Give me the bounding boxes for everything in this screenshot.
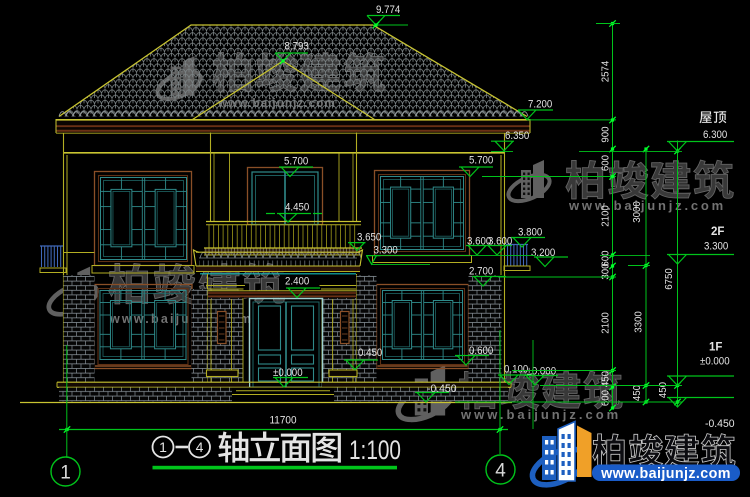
svg-text:3300: 3300 xyxy=(633,311,645,333)
svg-text:7.200: 7.200 xyxy=(528,99,552,111)
svg-text:6.350: 6.350 xyxy=(505,130,529,142)
svg-text:3.800: 3.800 xyxy=(518,227,542,239)
svg-text:5.700: 5.700 xyxy=(469,155,493,167)
svg-text:8.793: 8.793 xyxy=(285,41,309,53)
svg-text:450: 450 xyxy=(600,371,612,387)
svg-text:0.100: 0.100 xyxy=(504,364,528,376)
svg-text:4: 4 xyxy=(495,461,506,482)
svg-text:3.300: 3.300 xyxy=(704,241,728,253)
svg-text:1F: 1F xyxy=(709,342,722,354)
svg-text:1: 1 xyxy=(60,463,71,484)
svg-text:600: 600 xyxy=(600,155,612,171)
svg-text:450: 450 xyxy=(657,382,669,398)
svg-text:-0.450: -0.450 xyxy=(705,418,735,430)
svg-text:5.700: 5.700 xyxy=(284,156,308,168)
svg-text:4.450: 4.450 xyxy=(285,202,309,214)
svg-text:1: 1 xyxy=(159,439,167,455)
svg-text:1:100: 1:100 xyxy=(349,435,401,465)
svg-text:2100: 2100 xyxy=(600,205,612,227)
svg-text:±0.000: ±0.000 xyxy=(700,356,730,368)
svg-text:3000: 3000 xyxy=(631,201,643,223)
svg-text:3.300: 3.300 xyxy=(374,245,398,257)
svg-text:2100: 2100 xyxy=(600,312,612,334)
svg-text:2F: 2F xyxy=(711,226,724,238)
svg-text:-0.450: -0.450 xyxy=(427,383,457,395)
svg-text:2574: 2574 xyxy=(600,61,612,83)
svg-text:450: 450 xyxy=(631,385,643,401)
svg-text:3.650: 3.650 xyxy=(357,232,381,244)
svg-text:www.baijunjz.com: www.baijunjz.com xyxy=(600,466,731,482)
svg-text:2.400: 2.400 xyxy=(285,276,309,288)
svg-text:9.774: 9.774 xyxy=(376,4,400,16)
svg-text:11700: 11700 xyxy=(270,415,297,427)
svg-text:2.700: 2.700 xyxy=(469,266,493,278)
svg-text:0.450: 0.450 xyxy=(358,347,382,359)
svg-text:6750: 6750 xyxy=(663,268,675,290)
svg-text:4: 4 xyxy=(196,439,204,455)
svg-text:600: 600 xyxy=(600,390,612,406)
svg-text:6.300: 6.300 xyxy=(703,129,727,141)
svg-text:www.baijunjz.com: www.baijunjz.com xyxy=(568,198,726,213)
svg-text:www.baijunjz.com: www.baijunjz.com xyxy=(460,407,621,422)
svg-text:900: 900 xyxy=(600,126,612,142)
